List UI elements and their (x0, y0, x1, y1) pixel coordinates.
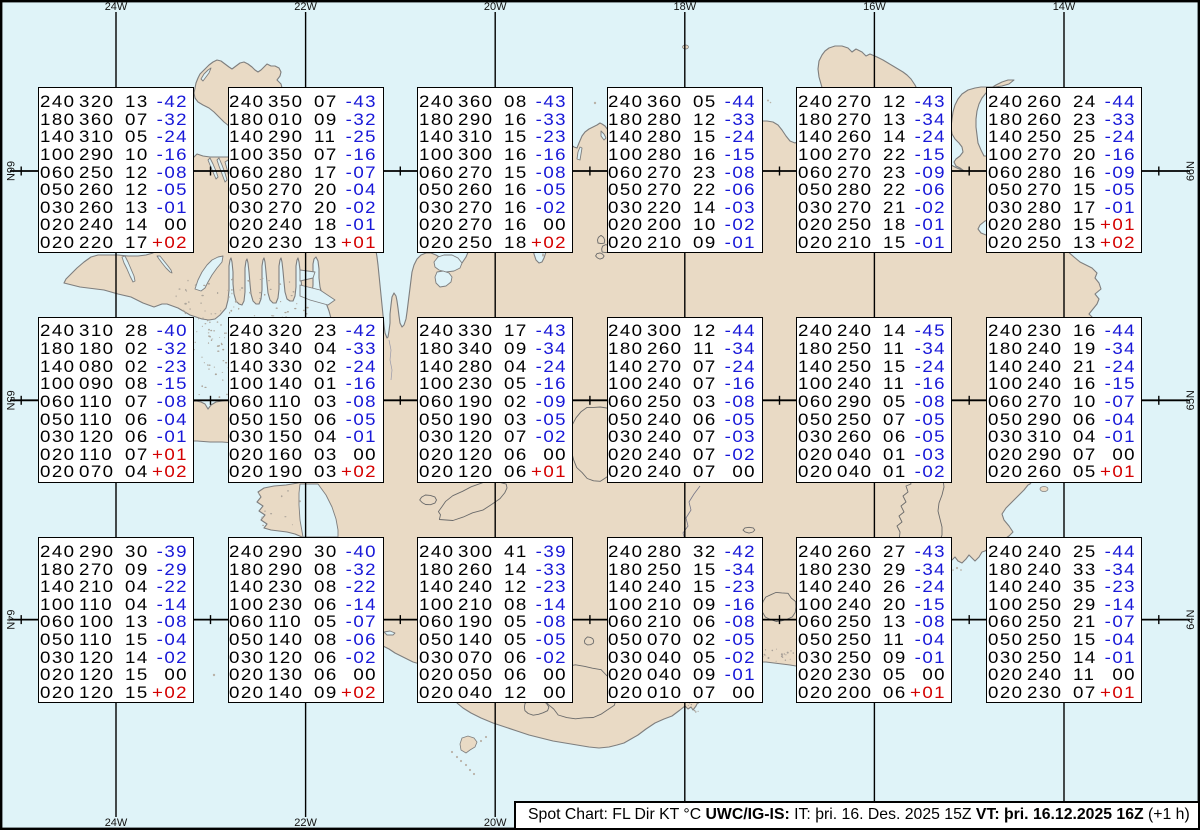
svg-text:14W: 14W (1053, 1, 1076, 13)
svg-text:65N: 65N (4, 390, 16, 410)
svg-text:22W: 22W (294, 1, 317, 13)
svg-text:20W: 20W (484, 1, 507, 13)
svg-text:18W: 18W (673, 1, 696, 13)
svg-text:24W: 24W (105, 1, 128, 13)
svg-text:24W: 24W (105, 817, 128, 829)
svg-text:64N: 64N (1185, 609, 1197, 629)
svg-text:64N: 64N (4, 610, 16, 630)
svg-text:66N: 66N (4, 161, 16, 181)
svg-text:65N: 65N (1185, 390, 1197, 410)
svg-text:16W: 16W (863, 1, 886, 13)
svg-text:66N: 66N (1185, 161, 1197, 181)
svg-text:20W: 20W (484, 817, 507, 829)
svg-text:22W: 22W (294, 817, 317, 829)
